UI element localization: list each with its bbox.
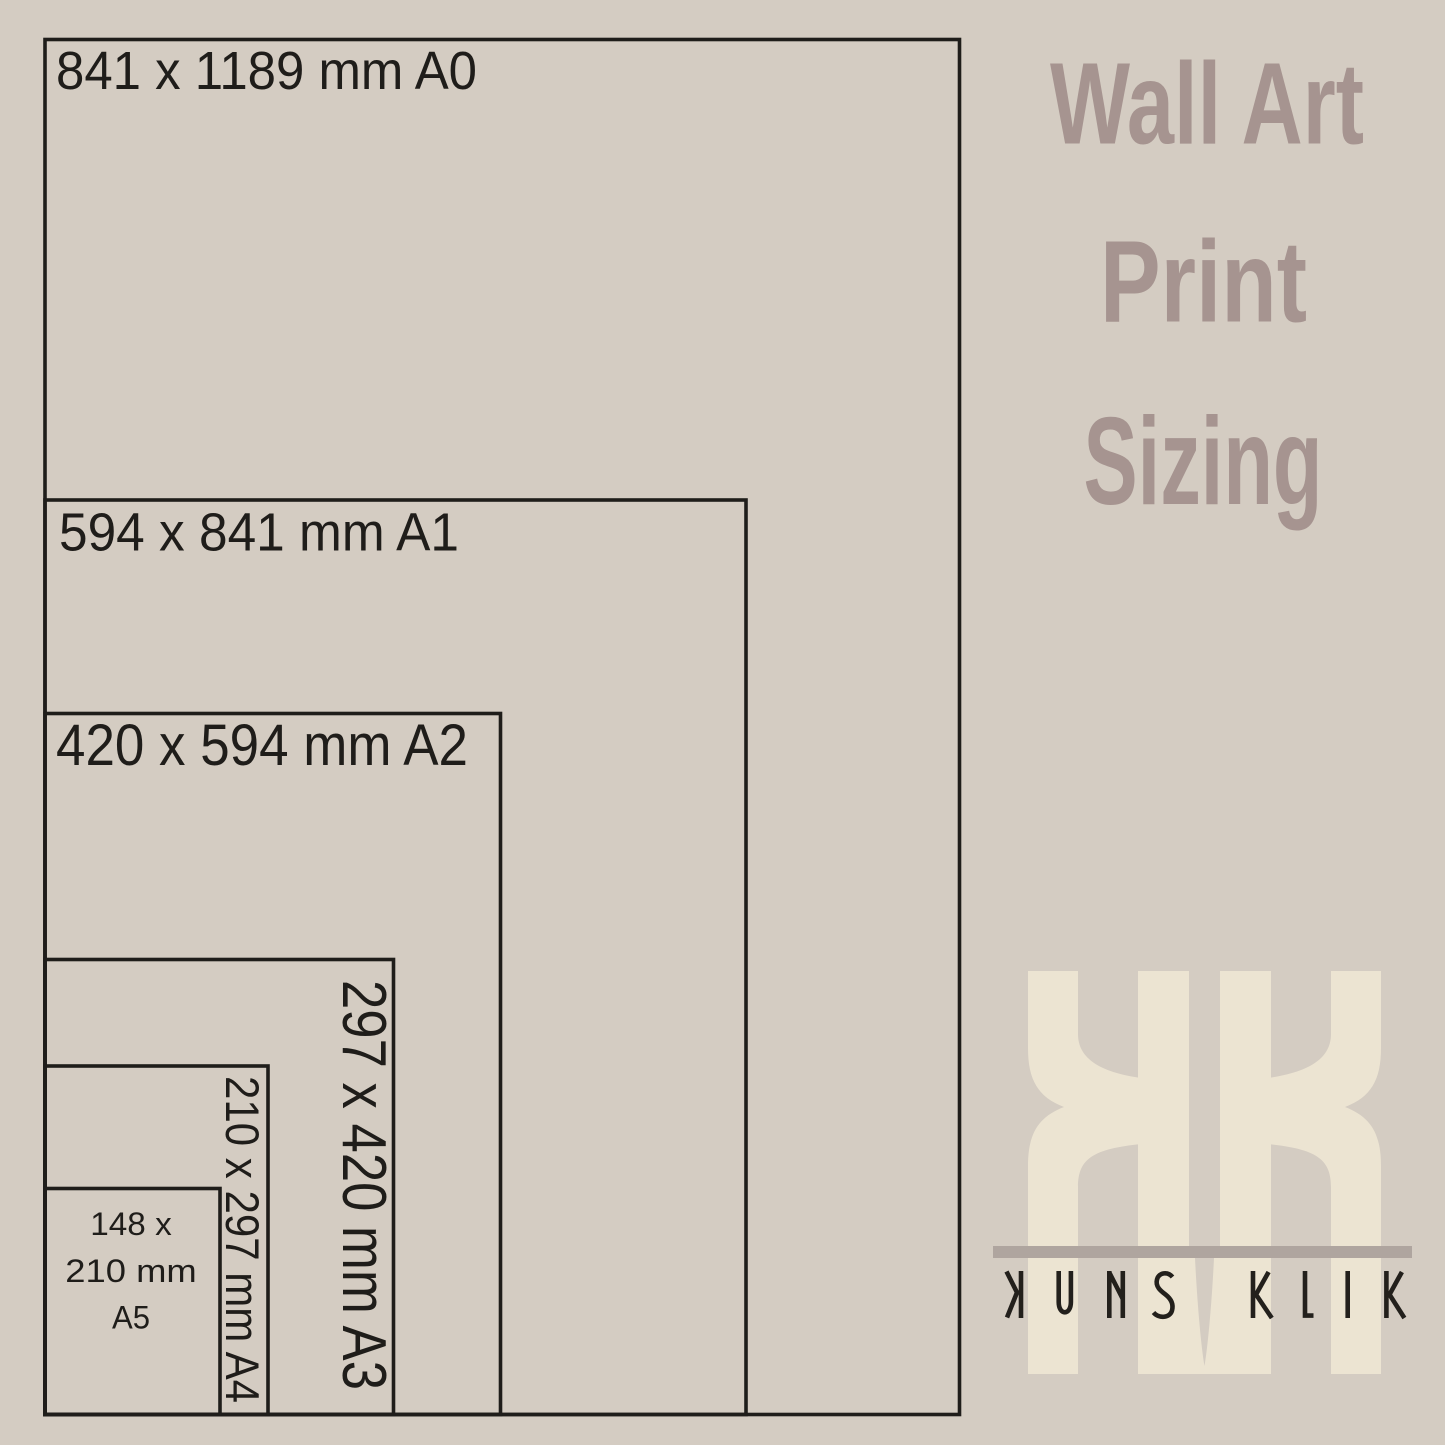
svg-text:Wall Art: Wall Art (1050, 39, 1364, 169)
svg-text:Print: Print (1100, 217, 1307, 347)
svg-text:420 x 594 mm A2: 420 x 594 mm A2 (56, 713, 468, 778)
svg-text:148 x: 148 x (90, 1206, 172, 1242)
svg-text:210 x 297 mm A4: 210 x 297 mm A4 (216, 1076, 269, 1403)
svg-text:841 x 1189 mm A0: 841 x 1189 mm A0 (56, 41, 477, 101)
svg-text:A5: A5 (112, 1300, 150, 1336)
svg-text:Sizing: Sizing (1084, 393, 1323, 531)
svg-text:210 mm: 210 mm (65, 1253, 197, 1289)
svg-text:297 x 420 mm A3: 297 x 420 mm A3 (329, 980, 398, 1390)
svg-text:594 x 841 mm A1: 594 x 841 mm A1 (59, 503, 459, 563)
